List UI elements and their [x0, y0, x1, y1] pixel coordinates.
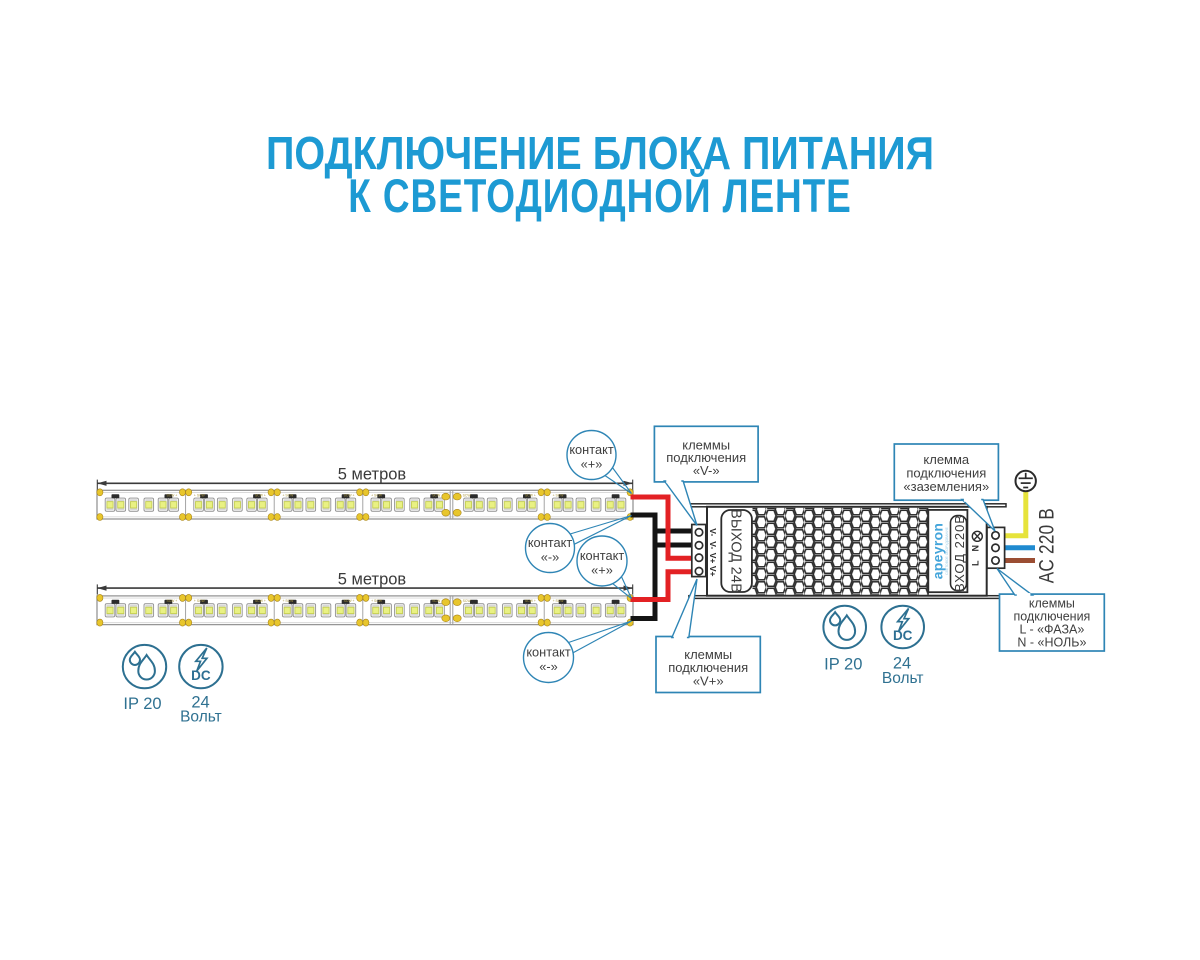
svg-text:подключения: подключения	[1013, 610, 1090, 624]
svg-text:«-»: «-»	[541, 550, 560, 565]
svg-text:N: N	[971, 545, 981, 552]
svg-text:+ SCW: + SCW	[283, 494, 295, 498]
svg-text:+ SCW: + SCW	[553, 494, 565, 498]
svg-text:+ SCW: + SCW	[194, 494, 206, 498]
svg-text:AC 220 В: AC 220 В	[1036, 508, 1059, 583]
svg-text:СВЕТОВОЕ ОБОРУДОВАНИЕ: СВЕТОВОЕ ОБОРУДОВАНИЕ	[945, 526, 949, 574]
svg-text:«+»: «+»	[581, 457, 603, 472]
svg-text:SCW +: SCW +	[525, 494, 536, 498]
svg-text:SCW +: SCW +	[525, 599, 536, 603]
svg-text:+ SCW: + SCW	[371, 494, 383, 498]
svg-text:«+»: «+»	[591, 563, 613, 578]
svg-text:SCW +: SCW +	[255, 494, 266, 498]
svg-text:SCW +: SCW +	[166, 494, 177, 498]
svg-text:L: L	[971, 560, 981, 566]
svg-text:V-: V-	[708, 528, 718, 536]
svg-text:«V-»: «V-»	[693, 463, 720, 478]
svg-text:ВЫХОД 24В: ВЫХОД 24В	[728, 509, 744, 593]
svg-text:контакт: контакт	[526, 645, 571, 660]
svg-text:V+: V+	[708, 566, 718, 577]
svg-text:+ SCW: + SCW	[371, 599, 383, 603]
svg-text:«-»: «-»	[539, 659, 558, 674]
svg-text:SCW +: SCW +	[255, 599, 266, 603]
svg-text:DC: DC	[191, 668, 211, 683]
svg-text:V+: V+	[708, 553, 718, 564]
svg-text:IP 20: IP 20	[824, 655, 862, 673]
svg-text:+ SCW: + SCW	[460, 599, 472, 603]
svg-text:SCW +: SCW +	[432, 494, 443, 498]
svg-text:Вольт: Вольт	[180, 709, 222, 726]
svg-text:К СВЕТОДИОДНОЙ ЛЕНТЕ: К СВЕТОДИОДНОЙ ЛЕНТЕ	[348, 169, 851, 222]
svg-text:+ SCW: + SCW	[194, 599, 206, 603]
svg-text:«заземления»: «заземления»	[903, 479, 989, 494]
svg-text:SCW +: SCW +	[344, 494, 355, 498]
svg-text:V-: V-	[708, 541, 718, 549]
svg-text:L - «ФАЗА»: L - «ФАЗА»	[1019, 623, 1084, 637]
svg-text:SCW +: SCW +	[344, 599, 355, 603]
svg-text:5 метров: 5 метров	[338, 570, 407, 588]
svg-text:контакт: контакт	[580, 548, 625, 563]
svg-text:+ SCW: + SCW	[460, 494, 472, 498]
svg-text:5 метров: 5 метров	[338, 466, 407, 484]
svg-text:DC: DC	[893, 628, 913, 643]
svg-text:ВХОД 220В: ВХОД 220В	[952, 514, 967, 592]
svg-text:+ SCW: + SCW	[283, 599, 295, 603]
svg-text:«V+»: «V+»	[693, 674, 724, 689]
svg-text:apeyron: apeyron	[930, 523, 946, 580]
svg-text:контакт: контакт	[569, 442, 614, 457]
svg-text:SCW +: SCW +	[432, 599, 443, 603]
svg-text:клеммы: клеммы	[1029, 597, 1075, 611]
svg-text:+ SCW: + SCW	[553, 599, 565, 603]
svg-text:SCW +: SCW +	[166, 599, 177, 603]
svg-text:контакт: контакт	[528, 535, 573, 550]
svg-text:N - «НОЛЬ»: N - «НОЛЬ»	[1017, 636, 1086, 650]
svg-text:Вольт: Вольт	[882, 670, 924, 687]
svg-text:IP 20: IP 20	[123, 695, 161, 713]
